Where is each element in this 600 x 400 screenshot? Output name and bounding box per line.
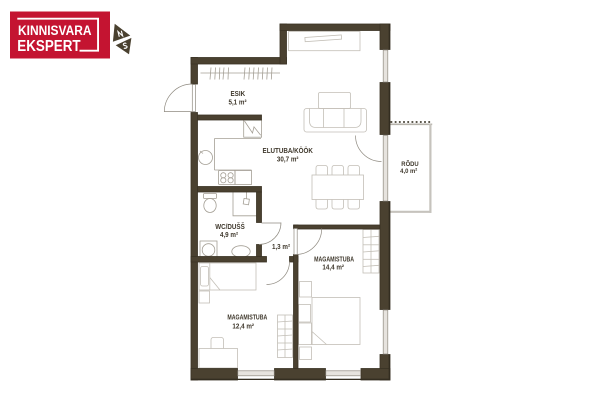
svg-text:KINNISVARA: KINNISVARA	[18, 22, 92, 38]
svg-text:5,1 m²: 5,1 m²	[228, 99, 247, 106]
svg-text:EKSPERT: EKSPERT	[17, 38, 80, 55]
svg-text:30,7 m²: 30,7 m²	[277, 156, 299, 163]
svg-text:4,0 m²: 4,0 m²	[400, 168, 417, 175]
svg-text:14,4 m²: 14,4 m²	[322, 264, 344, 271]
svg-text:ELUTUBA/KÖÖK: ELUTUBA/KÖÖK	[263, 146, 313, 156]
svg-text:4,9 m²: 4,9 m²	[220, 232, 239, 239]
svg-text:ESIK: ESIK	[231, 90, 246, 97]
svg-text:1,3 m²: 1,3 m²	[272, 244, 291, 251]
svg-text:MAGAMISTUBA: MAGAMISTUBA	[227, 314, 267, 322]
svg-text:12,4 m²: 12,4 m²	[232, 323, 254, 330]
svg-text:WC/DUŠŠ: WC/DUŠŠ	[215, 222, 245, 232]
svg-text:MAGAMISTUBA: MAGAMISTUBA	[314, 256, 354, 264]
